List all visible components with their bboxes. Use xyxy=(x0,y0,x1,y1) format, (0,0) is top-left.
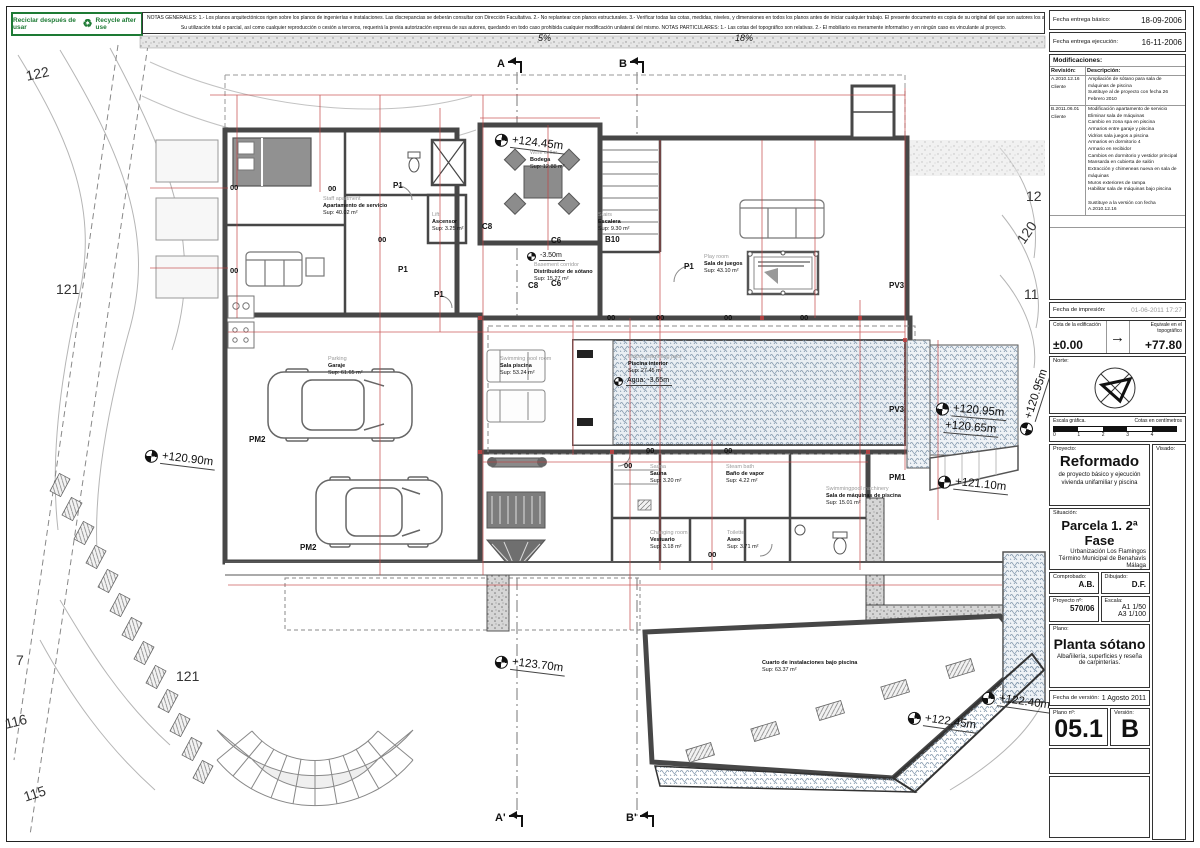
checked-by-value: A.B. xyxy=(1053,580,1095,589)
north-arrow-icon xyxy=(1092,365,1138,411)
revision-empty-row xyxy=(1050,215,1185,227)
project-box: Proyecto: Reformado de proyecto básico y… xyxy=(1049,444,1150,506)
drawing-sheet: Staff apartmentApartamento de servicioSu… xyxy=(0,0,1200,848)
drawn-by-value: D.F. xyxy=(1105,580,1147,589)
scale-tick-label: 2 xyxy=(1102,432,1105,438)
units-label: Cotas en centímetros xyxy=(1134,418,1182,424)
empty-box xyxy=(1049,776,1150,839)
version-date-label: Fecha de versión: xyxy=(1053,695,1099,701)
graphic-scale-label: Escala gráfica. xyxy=(1053,418,1086,424)
modifications-title: Modificaciones: xyxy=(1050,55,1185,66)
location-line: Málaga xyxy=(1053,563,1146,569)
project-subtitle-1: de proyecto básico y ejecución xyxy=(1053,472,1146,478)
scale-a3: A3 1/100 xyxy=(1105,611,1147,618)
floor-plan-drawing xyxy=(0,0,1200,848)
revision-author: Cliente xyxy=(1051,115,1084,120)
revision-header: Revisión: Descripción: xyxy=(1050,66,1185,75)
modifications-box: Modificaciones: Revisión: Descripción: A… xyxy=(1049,54,1186,300)
north-box: Norte: xyxy=(1049,356,1186,414)
checked-by-box: Comprobado: A.B. xyxy=(1049,572,1099,594)
scale-tick-label: 3 xyxy=(1126,432,1129,438)
cota-label: Cota de la edificación xyxy=(1053,322,1103,328)
delivery-date-execution: Fecha entrega ejecución: 16-11-2006 xyxy=(1049,32,1186,52)
approval-stamp-box: Visado: xyxy=(1152,444,1186,840)
print-date-box: Fecha de impresión: 01-06-2011 17:27 xyxy=(1049,302,1186,318)
sheet-title: Planta sótano xyxy=(1053,636,1146,652)
project-block: Proyecto: Reformado de proyecto básico y… xyxy=(1049,444,1186,840)
arrow-right-icon: → xyxy=(1106,321,1130,353)
equiv-label: Equivale en el topográfico xyxy=(1133,322,1183,334)
sheet-label: Plano: xyxy=(1053,626,1146,632)
revision-author: Cliente xyxy=(1051,85,1084,90)
revision-rows: A.2010.12.16ClienteAmpliación de sótano … xyxy=(1050,75,1185,215)
scale-tick-label: 0 xyxy=(1053,432,1056,438)
cota-value: ±0.00 xyxy=(1053,338,1103,352)
scale-tick-label: 1 xyxy=(1077,432,1080,438)
version-value: B xyxy=(1114,716,1146,744)
fecha-ejecucion-label: Fecha entrega ejecución: xyxy=(1053,39,1118,45)
scale-a1: A1 1/50 xyxy=(1105,604,1147,611)
revision-empty-row xyxy=(1050,227,1185,239)
project-label: Proyecto: xyxy=(1053,446,1146,452)
revision-id: B.2011.06.01Cliente xyxy=(1050,106,1086,215)
location-line: Término Municipal de Benahavís xyxy=(1053,556,1146,562)
delivery-date-basic: Fecha entrega básico: 18-09-2006 xyxy=(1049,10,1186,30)
version-box: Versión: B xyxy=(1110,708,1150,746)
location-title: Parcela 1. 2ª Fase xyxy=(1053,518,1146,548)
drawn-by-box: Dibujado: D.F. xyxy=(1101,572,1151,594)
fecha-basico-label: Fecha entrega básico: xyxy=(1053,17,1110,23)
fecha-ejecucion-value: 16-11-2006 xyxy=(1142,38,1182,47)
location-line: Urbanización Los Flamingos xyxy=(1053,549,1146,555)
scale-numbers: 01234 xyxy=(1053,432,1182,439)
approval-label: Visado: xyxy=(1156,446,1175,452)
print-date-value: 01-06-2011 17:27 xyxy=(1131,307,1182,314)
empty-box xyxy=(1049,748,1150,774)
revision-description: Ampliación de sótano para sala de máquin… xyxy=(1086,76,1185,105)
revision-code: A.2010.12.16 xyxy=(1051,77,1084,82)
sheet-number-box: Plano nº: 05.1 xyxy=(1049,708,1108,746)
graphic-scale-box: Escala gráfica. Cotas en centímetros 012… xyxy=(1049,416,1186,442)
revision-description: Modificación apartamento de servicio Eli… xyxy=(1086,106,1185,215)
elevation-reference-box: Cota de la edificación ±0.00 → Equivale … xyxy=(1049,320,1186,354)
version-date-value: 1 Agosto 2011 xyxy=(1102,695,1146,702)
location-label: Situación: xyxy=(1053,510,1146,516)
description-col-label: Descripción: xyxy=(1086,67,1121,75)
print-date-label: Fecha de impresión: xyxy=(1053,307,1106,313)
title-block: Fecha entrega básico: 18-09-2006 Fecha e… xyxy=(1049,10,1186,840)
revision-row: B.2011.06.01ClienteModificación apartame… xyxy=(1050,105,1185,215)
revision-code: B.2011.06.01 xyxy=(1051,107,1084,112)
sheet-number-value: 05.1 xyxy=(1053,716,1104,744)
project-subtitle-2: vivienda unifamiliar y piscina xyxy=(1053,480,1146,486)
project-number-value: 570/06 xyxy=(1053,604,1095,613)
sheet-subtitle: Albañilería, superficies y reseña de car… xyxy=(1053,654,1146,666)
scale-box: Escala: A1 1/50 A3 1/100 xyxy=(1101,596,1151,622)
sheet-title-box: Plano: Planta sótano Albañilería, superf… xyxy=(1049,624,1150,688)
scale-tick-label: 4 xyxy=(1151,432,1154,438)
equiv-value: +77.80 xyxy=(1133,338,1183,352)
version-date-box: Fecha de versión: 1 Agosto 2011 xyxy=(1049,690,1150,706)
north-label: Norte: xyxy=(1053,358,1069,364)
revision-row: A.2010.12.16ClienteAmpliación de sótano … xyxy=(1050,75,1185,105)
project-number-box: Proyecto nº: 570/06 xyxy=(1049,596,1099,622)
building-datum: Cota de la edificación ±0.00 xyxy=(1050,321,1106,353)
topographic-equivalent: Equivale en el topográfico +77.80 xyxy=(1130,321,1186,353)
project-title: Reformado xyxy=(1053,453,1146,470)
fecha-basico-value: 18-09-2006 xyxy=(1141,16,1182,25)
revision-id: A.2010.12.16Cliente xyxy=(1050,76,1086,105)
location-box: Situación: Parcela 1. 2ª Fase Urbanizaci… xyxy=(1049,508,1150,570)
revision-col-label: Revisión: xyxy=(1050,67,1086,75)
